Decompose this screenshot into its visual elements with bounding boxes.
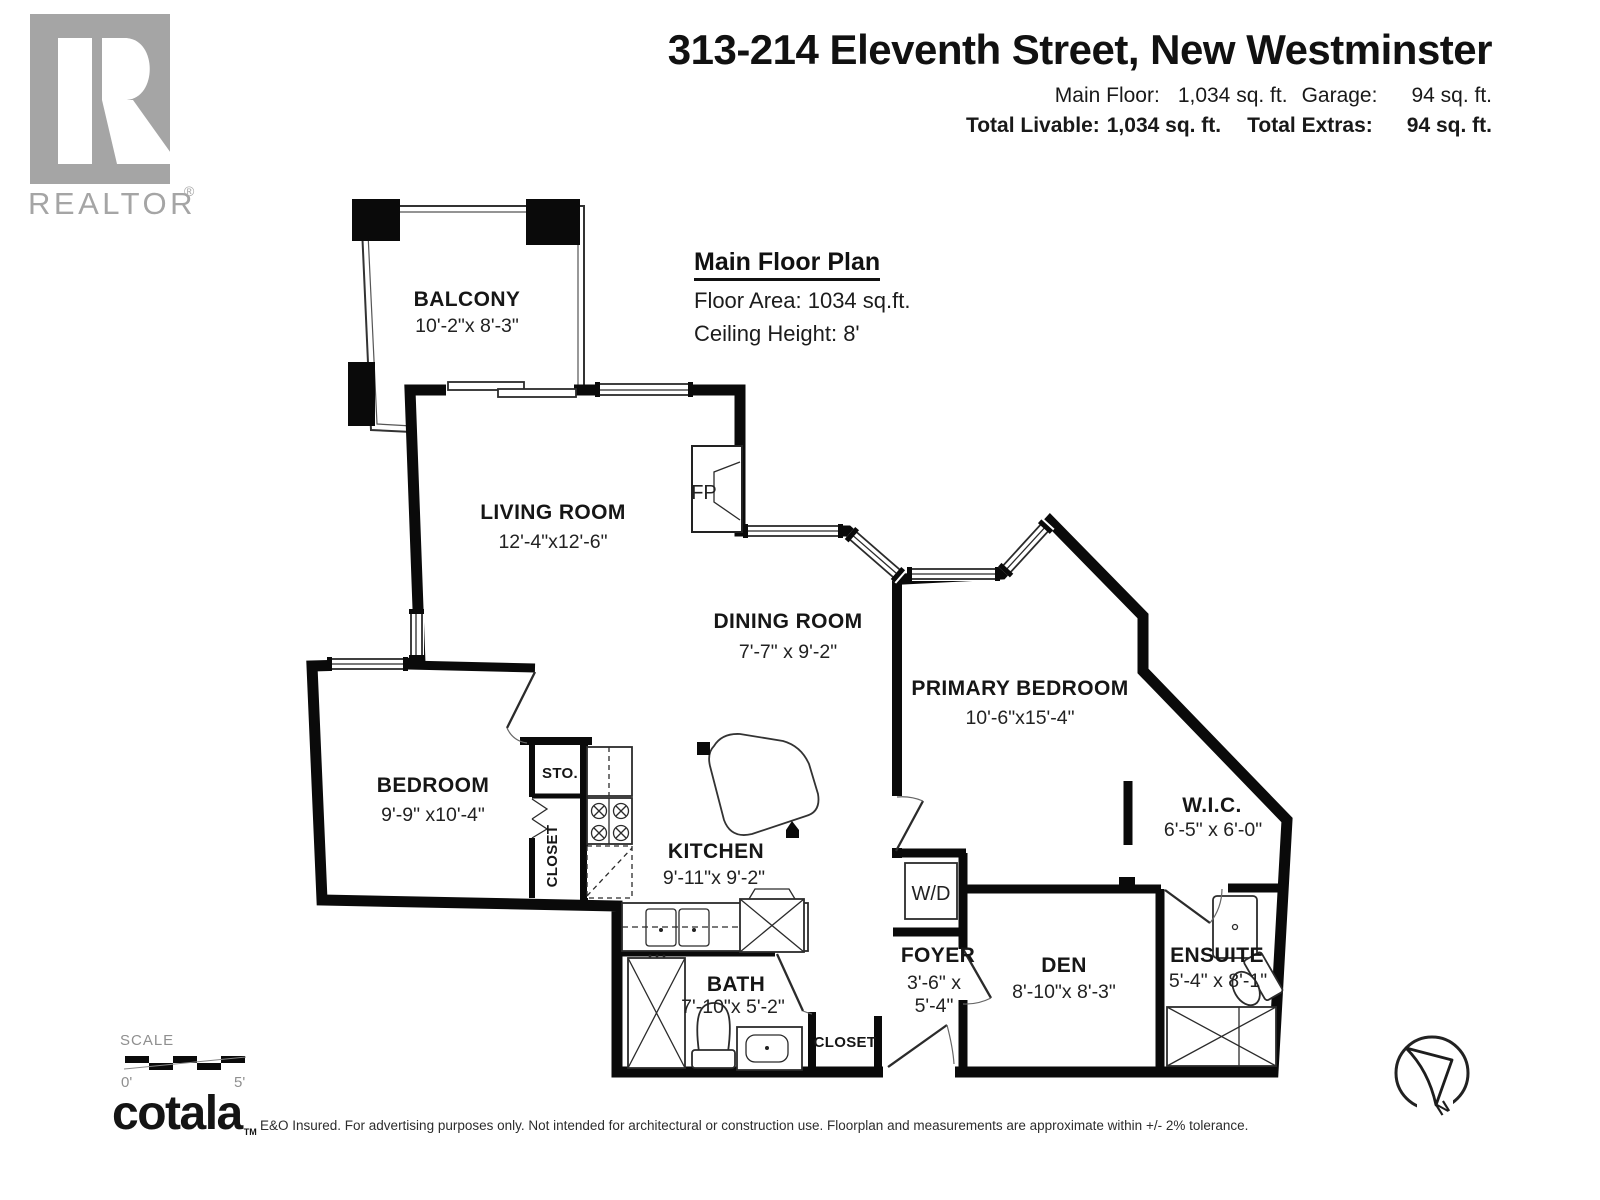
balcony-dims: 10'-2"x 8'-3" xyxy=(415,315,519,337)
window xyxy=(409,609,424,660)
window xyxy=(743,524,843,538)
disclaimer-text: E&O Insured. For advertising purposes on… xyxy=(260,1118,1510,1133)
kitchen-sink-unit xyxy=(740,889,804,952)
kitchen-dims: 9'-11"x 9'-2" xyxy=(663,867,765,889)
scale-label: SCALE xyxy=(120,1032,174,1049)
fridge xyxy=(587,747,632,796)
entry-opening xyxy=(883,1064,955,1079)
balcony-sliding-door xyxy=(446,381,576,398)
bath-vanity-sink xyxy=(737,1027,802,1070)
cotala-wordmark: cotala xyxy=(112,1087,242,1140)
ensuite-dims: 5'-4" x 8'-1" xyxy=(1169,970,1267,992)
window xyxy=(327,657,408,671)
trademark-icon: TM xyxy=(244,1127,257,1137)
bedroom-dims: 9'-9" x10'-4" xyxy=(381,804,485,826)
ensuite-label: ENSUITE xyxy=(1170,944,1264,967)
floorplan-page: REALTOR ® 313-214 Eleventh Street, New W… xyxy=(0,0,1600,1200)
cotala-logo: cotalaTM xyxy=(112,1090,255,1138)
fireplace-label: FP xyxy=(691,482,717,504)
dining-room-label: DINING ROOM xyxy=(713,610,862,633)
balcony-post xyxy=(526,199,580,245)
washer-dryer-label: W/D xyxy=(912,883,951,905)
washer-dryer: W/D xyxy=(905,863,957,919)
living-room-label: LIVING ROOM xyxy=(480,501,626,524)
bath-dims: 7'-10"x 5'-2" xyxy=(681,996,785,1018)
dining-room-dims: 7'-7" x 9'-2" xyxy=(739,641,837,663)
bedroom-label: BEDROOM xyxy=(377,774,489,797)
foyer-dims-1: 3'-6" x xyxy=(907,972,961,994)
compass-icon: N xyxy=(1396,1037,1468,1121)
primary-bedroom-dims: 10'-6"x15'-4" xyxy=(965,707,1074,729)
balcony-post xyxy=(348,362,375,426)
primary-bedroom-label: PRIMARY BEDROOM xyxy=(911,677,1128,700)
stove xyxy=(587,798,632,844)
outer-walls xyxy=(312,390,1287,1072)
foyer-label: FOYER xyxy=(901,944,975,967)
bathtub xyxy=(1167,1007,1276,1066)
hall-closet-label: CLOSET xyxy=(814,1034,877,1051)
dishwasher xyxy=(587,846,632,898)
balcony-label: BALCONY xyxy=(414,288,521,311)
bedroom-closet-label: CLOSET xyxy=(544,825,561,888)
living-room-dims: 12'-4"x12'-6" xyxy=(498,531,607,553)
den-dims: 8'-10"x 8'-3" xyxy=(1012,981,1116,1003)
den-label: DEN xyxy=(1041,954,1087,977)
foyer-dims-2: 5'-4" xyxy=(915,995,954,1017)
column-post xyxy=(697,742,710,755)
wic-dims: 6'-5" x 6'-0" xyxy=(1164,819,1262,841)
shower xyxy=(628,958,685,1068)
balcony-post xyxy=(352,199,400,241)
fireplace: FP xyxy=(691,446,742,532)
scale-bar: SCALE 0' 5' xyxy=(120,1032,246,1091)
window xyxy=(595,382,693,397)
bath-label: BATH xyxy=(707,973,765,996)
kitchen-label: KITCHEN xyxy=(668,840,764,863)
storage-label: STO. xyxy=(542,765,578,782)
wic-label: W.I.C. xyxy=(1182,794,1242,817)
window xyxy=(907,567,1000,581)
floorplan-drawing: FP xyxy=(0,0,1600,1200)
